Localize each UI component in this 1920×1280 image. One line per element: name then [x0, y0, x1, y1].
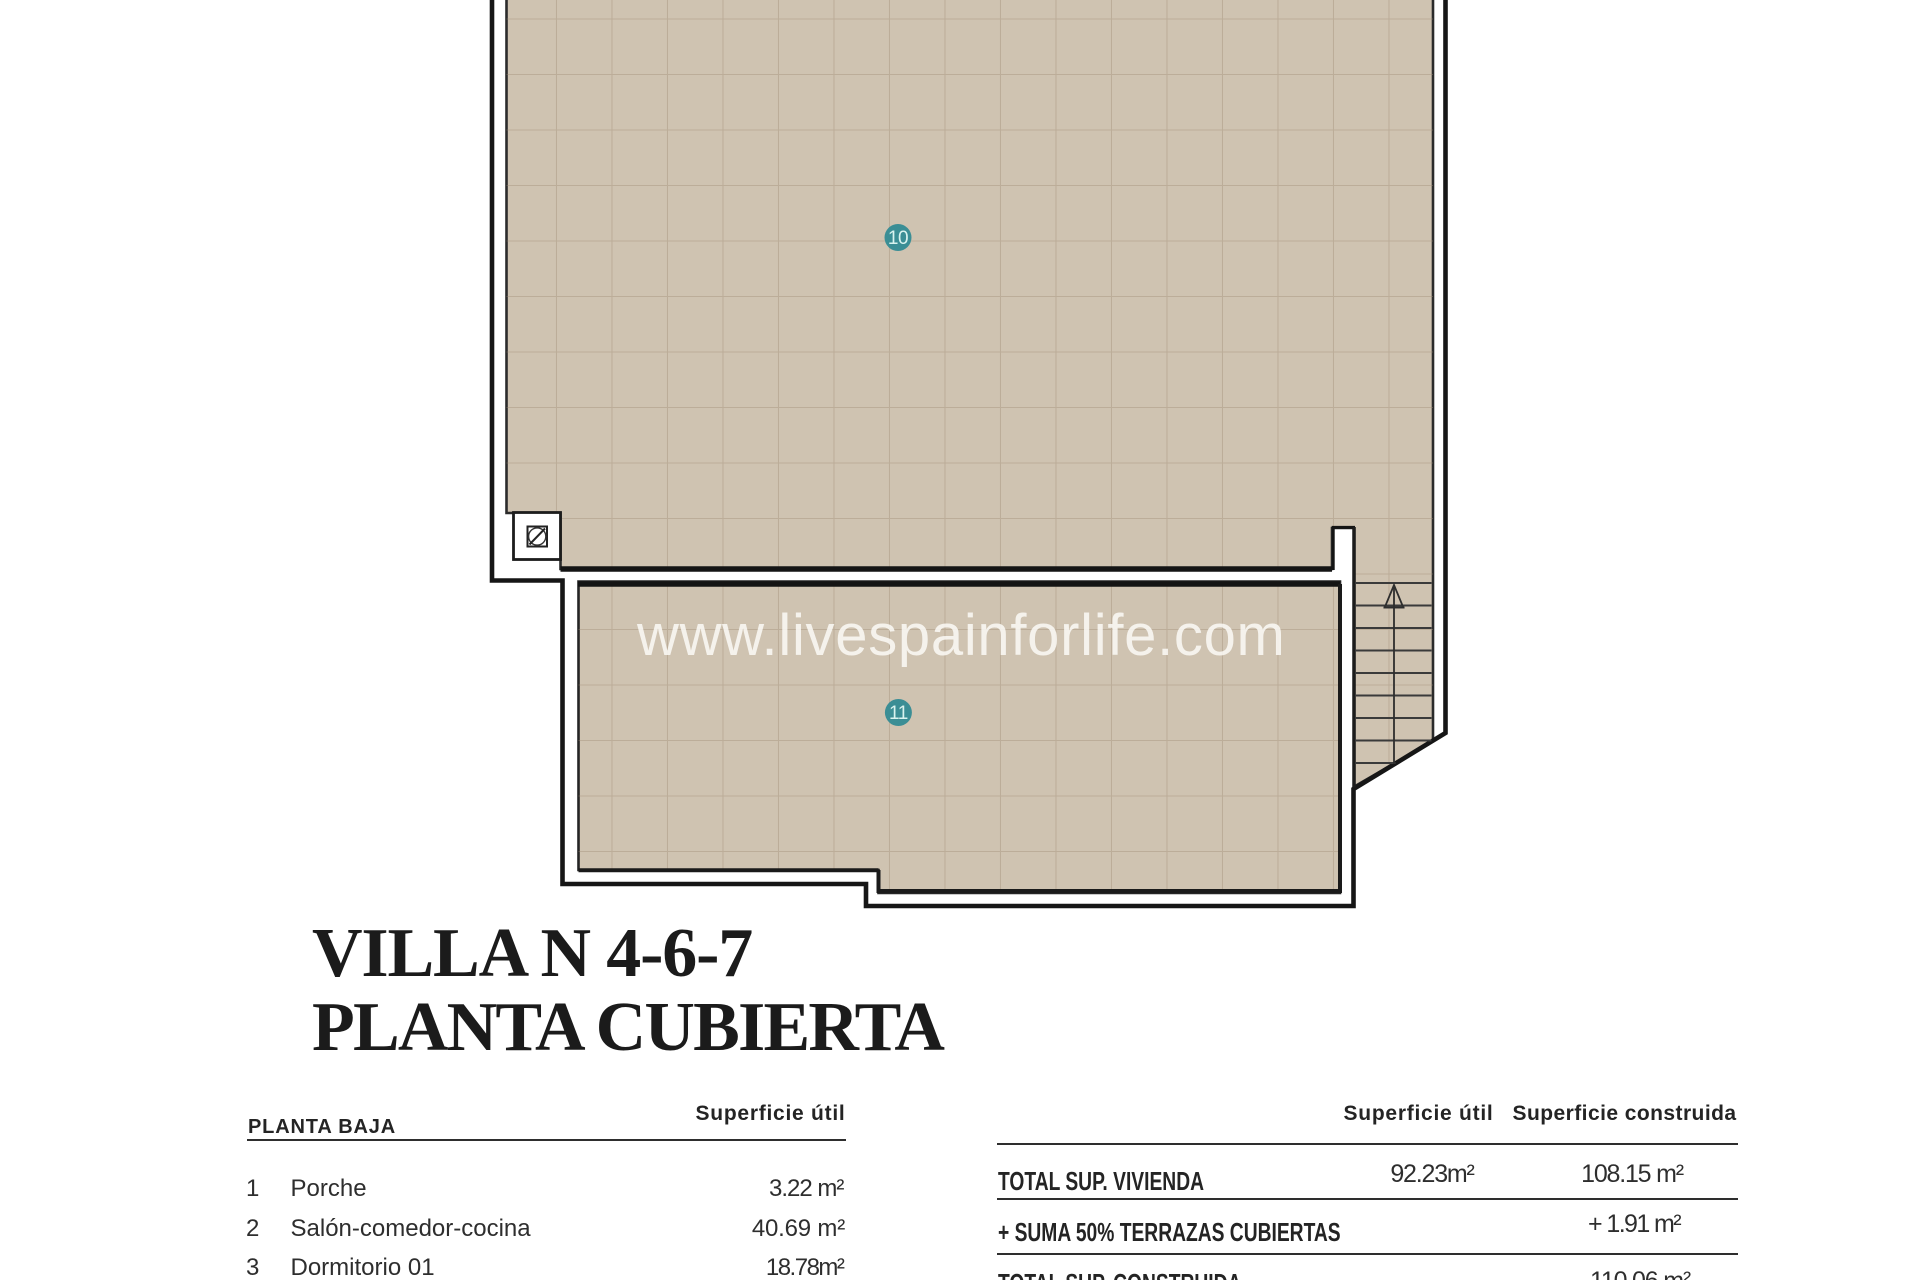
svg-text:11: 11 — [889, 703, 908, 724]
svg-text:10: 10 — [888, 228, 908, 249]
